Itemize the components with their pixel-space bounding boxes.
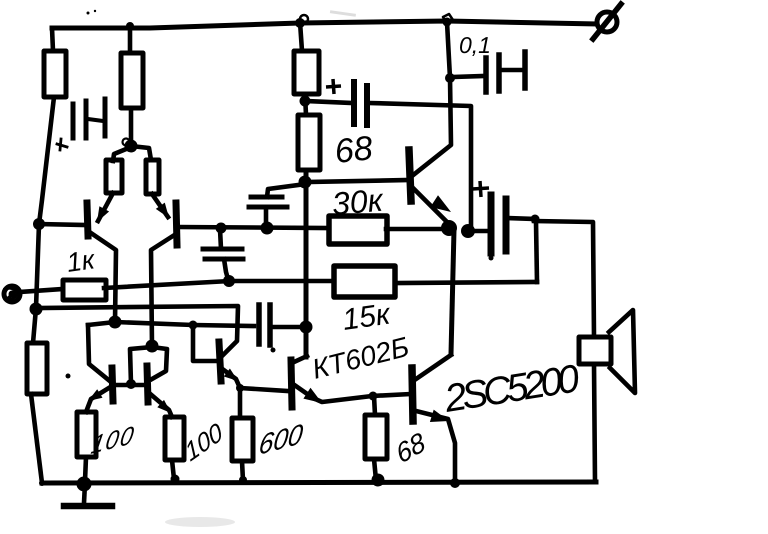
svg-text:68: 68: [392, 427, 429, 470]
svg-text:600: 600: [257, 418, 304, 462]
svg-text:15к: 15к: [340, 297, 393, 337]
svg-text:1к: 1к: [65, 244, 98, 278]
svg-text:30к: 30к: [330, 182, 386, 222]
svg-text:2SC5200: 2SC5200: [441, 357, 583, 421]
svg-text:68: 68: [333, 129, 375, 171]
svg-text:КТ602Б: КТ602Б: [309, 331, 412, 385]
svg-text:100: 100: [181, 417, 226, 467]
svg-text:0,1: 0,1: [459, 32, 491, 58]
